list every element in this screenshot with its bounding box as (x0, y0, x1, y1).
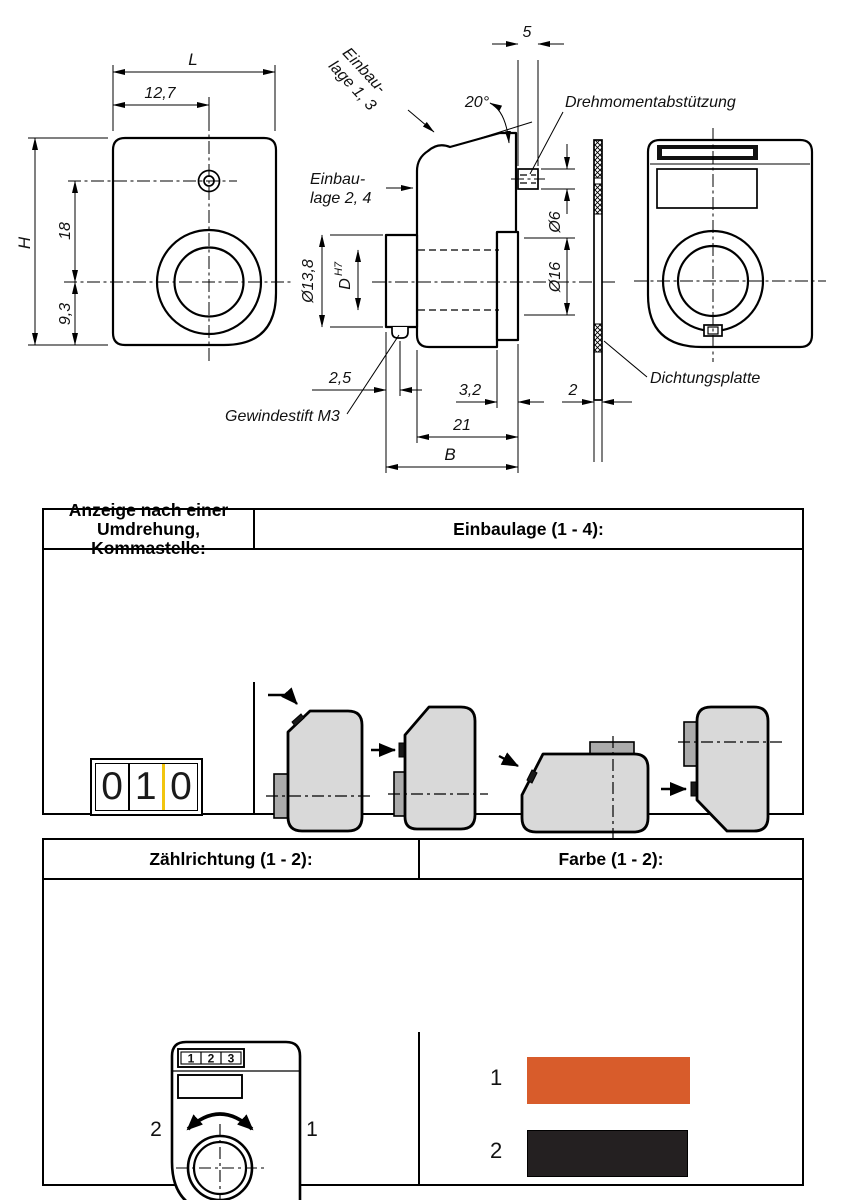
svg-text:3: 3 (228, 1052, 235, 1066)
header-farbe: Farbe (1 - 2): (420, 840, 802, 880)
dim-D-H7: D H7 (333, 261, 354, 290)
anzeige-cell: 0 1 0 z. B. 21901-01001111 0100 = 1mm St… (44, 682, 255, 814)
dim-20deg: 20° (464, 94, 490, 111)
dim-L: L (188, 50, 197, 69)
callout-einbaulage-2-4: Einbau- lage 2, 4 (310, 171, 371, 207)
dim-9-3: 9,3 (57, 303, 74, 325)
counter-display: 0 1 0 (90, 758, 203, 816)
mini-label-window (178, 1075, 242, 1098)
zaehlrichtung-figure: .zol{fill:#fff;stroke:#000;stroke-width:… (44, 1032, 415, 1200)
dim-dia-13-8: Ø13,8 (300, 259, 317, 304)
dim-H: H (15, 236, 34, 249)
dim-3-2: 3,2 (459, 382, 481, 399)
svg-text:1: 1 (188, 1052, 195, 1066)
callout-einbaulage-1-3: Einbau- lage 1, 3 (325, 45, 393, 115)
table-anzeige-einbaulage: Anzeige nach einer Umdrehung, Kommastell… (42, 508, 804, 815)
color-swatch-black (527, 1130, 688, 1177)
counter-digit: 1 (130, 764, 162, 810)
dim-2: 2 (568, 382, 578, 399)
mini-counter-display: 1 2 3 (178, 1049, 244, 1067)
direction-2-label: 2 (150, 1118, 162, 1141)
zaehlrichtung-cell: .zol{fill:#fff;stroke:#000;stroke-width:… (44, 1032, 420, 1184)
svg-text:2: 2 (208, 1052, 215, 1066)
front-view: L 12,7 H 18 9,3 (15, 50, 292, 362)
header-anzeige-line1: Anzeige nach einer (44, 501, 253, 520)
svg-text:lage 2, 4: lage 2, 4 (310, 190, 371, 207)
dim-21: 21 (452, 417, 471, 434)
header-einbaulage: Einbaulage (1 - 4): (255, 510, 802, 550)
farbe-cell: 1 2 z. B. 21901-01001111 1 = Farbe orang… (420, 1032, 802, 1184)
header-anzeige-line2: Umdrehung, Kommastelle: (44, 520, 253, 558)
catalog-page: L 12,7 H 18 9,3 (0, 0, 846, 1200)
callout-dichtungsplatte: Dichtungsplatte (650, 370, 760, 387)
swatch-1-label: 1 (490, 1065, 502, 1091)
header-zaehlrichtung: Zählrichtung (1 - 2): (44, 840, 420, 880)
dim-dia-16: Ø16 (547, 262, 564, 293)
dim-2-5: 2,5 (328, 370, 351, 387)
callout-drehmomentabstuetzung: Drehmomentabstützung (565, 94, 736, 111)
dim-B: B (444, 445, 455, 464)
svg-text:D: D (337, 278, 354, 290)
callout-gewindestift-m3: Gewindestift M3 (225, 408, 340, 425)
counter-digit: 0 (96, 764, 128, 810)
swatch-2-label: 2 (490, 1138, 502, 1164)
dim-5: 5 (523, 24, 532, 41)
technical-drawing: L 12,7 H 18 9,3 (0, 0, 846, 500)
einbaulage-cell: .gb{fill:#D9D9D9;stroke:#000;stroke-widt… (255, 682, 802, 814)
counter-digit: 0 (165, 764, 197, 810)
dim-12-7: 12,7 (144, 85, 176, 102)
svg-text:H7: H7 (333, 261, 345, 276)
rear-view (634, 128, 826, 362)
direction-1-label: 1 (306, 1118, 318, 1141)
color-swatch-orange (527, 1057, 690, 1104)
label-window (657, 169, 757, 208)
header-anzeige: Anzeige nach einer Umdrehung, Kommastell… (44, 510, 255, 550)
svg-text:Einbau-: Einbau- (310, 171, 365, 188)
dim-dia-6: Ø6 (547, 211, 564, 233)
dim-18: 18 (57, 222, 74, 240)
table-zaehlrichtung-farbe: Zählrichtung (1 - 2): Farbe (1 - 2): .zo… (42, 838, 804, 1186)
